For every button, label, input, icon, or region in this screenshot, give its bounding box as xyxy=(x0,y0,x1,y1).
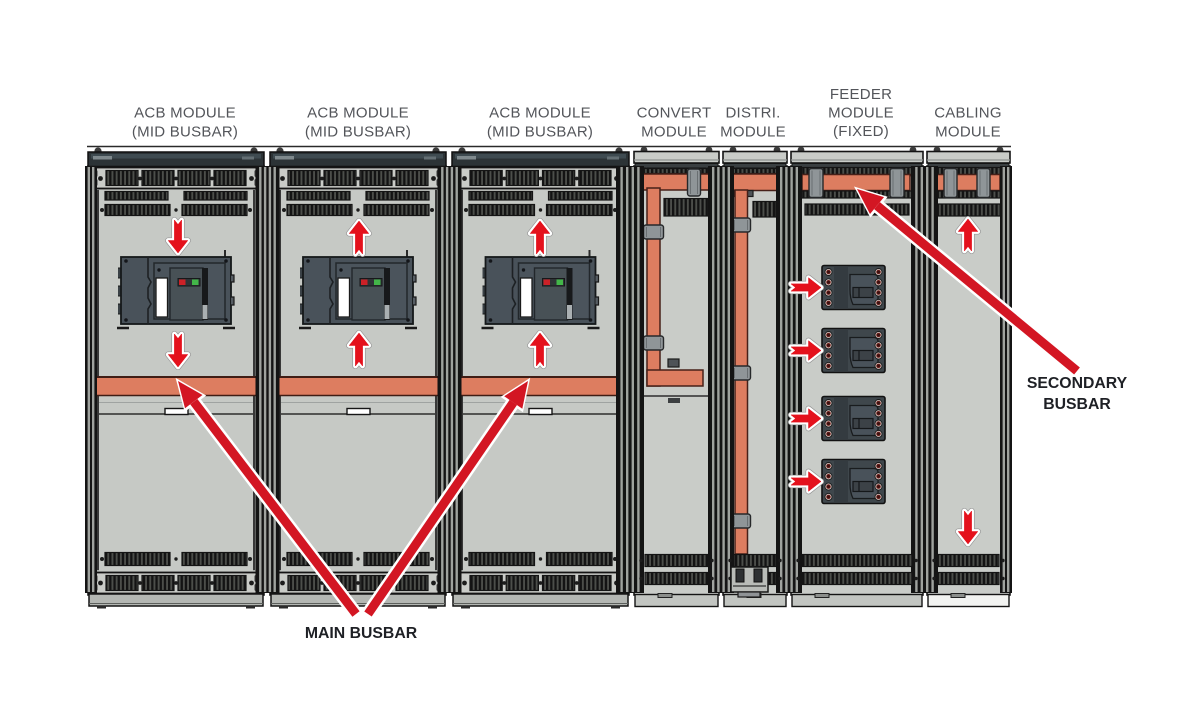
svg-text:MAIN BUSBAR: MAIN BUSBAR xyxy=(305,625,418,642)
svg-text:FEEDERMODULE(FIXED): FEEDERMODULE(FIXED) xyxy=(828,86,894,140)
